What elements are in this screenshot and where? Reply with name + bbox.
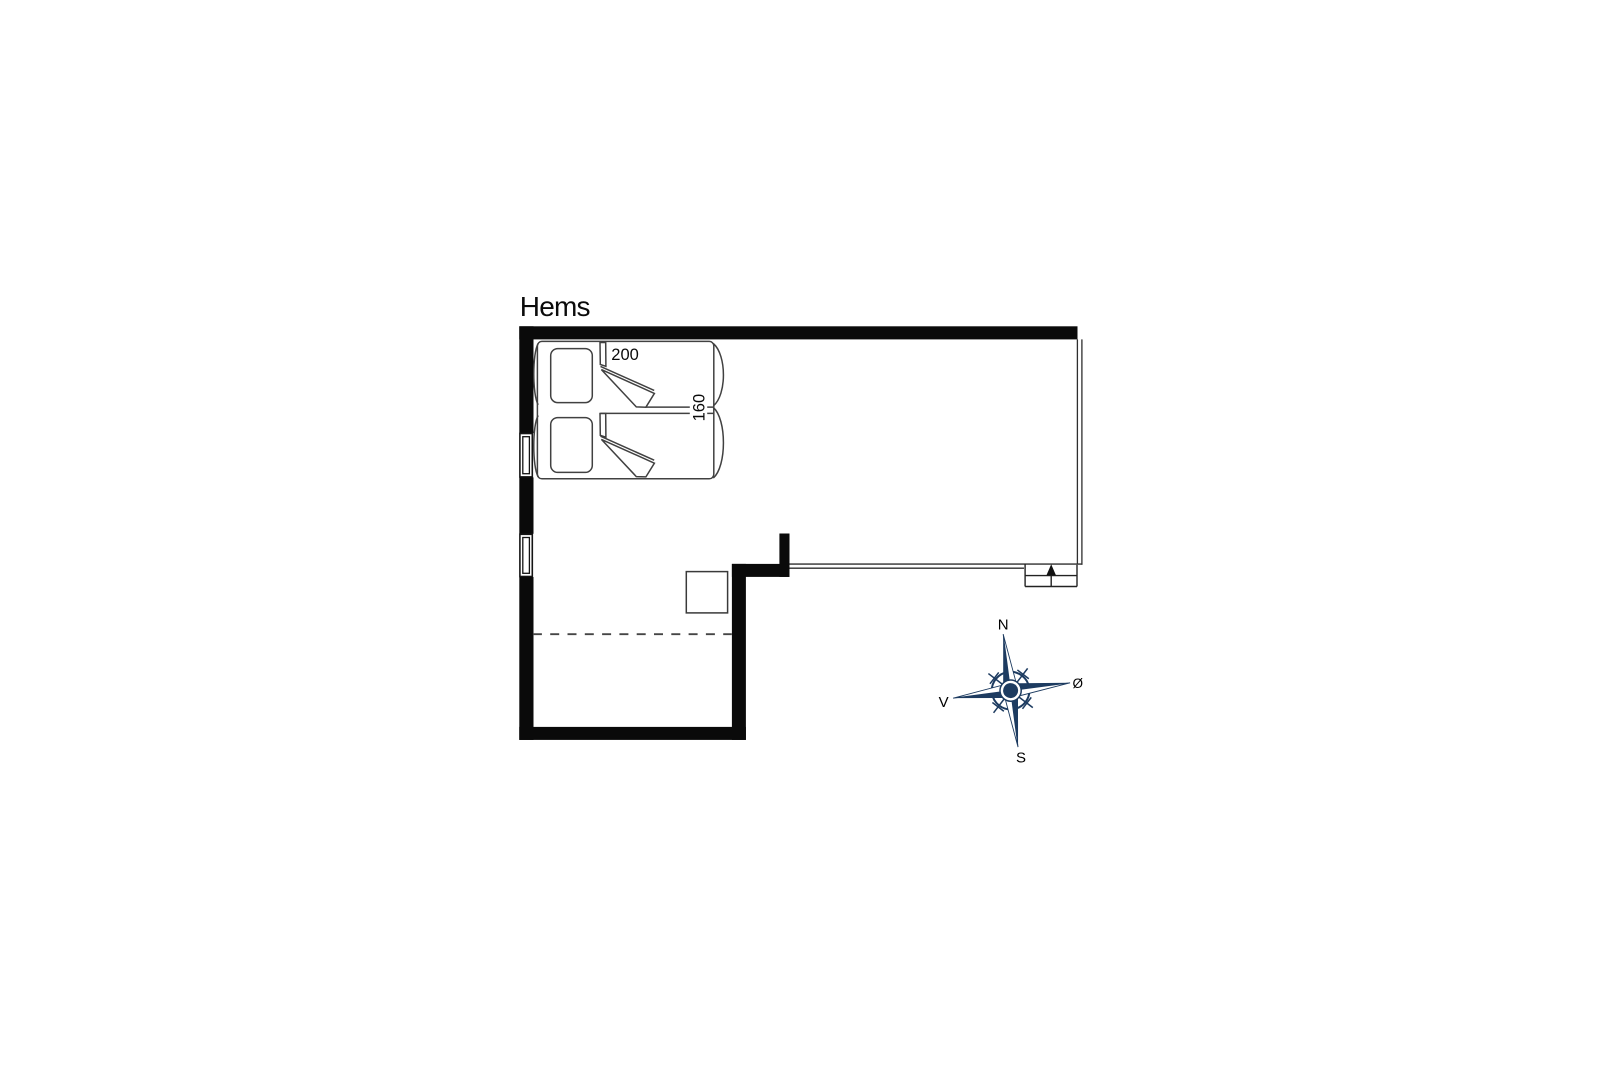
svg-text:160: 160 bbox=[690, 394, 708, 422]
svg-text:V: V bbox=[939, 694, 949, 711]
svg-text:N: N bbox=[998, 617, 1009, 634]
svg-text:Hems: Hems bbox=[520, 291, 590, 322]
svg-text:Ø: Ø bbox=[1073, 676, 1084, 691]
svg-text:200: 200 bbox=[611, 346, 639, 364]
svg-text:S: S bbox=[1016, 749, 1026, 766]
